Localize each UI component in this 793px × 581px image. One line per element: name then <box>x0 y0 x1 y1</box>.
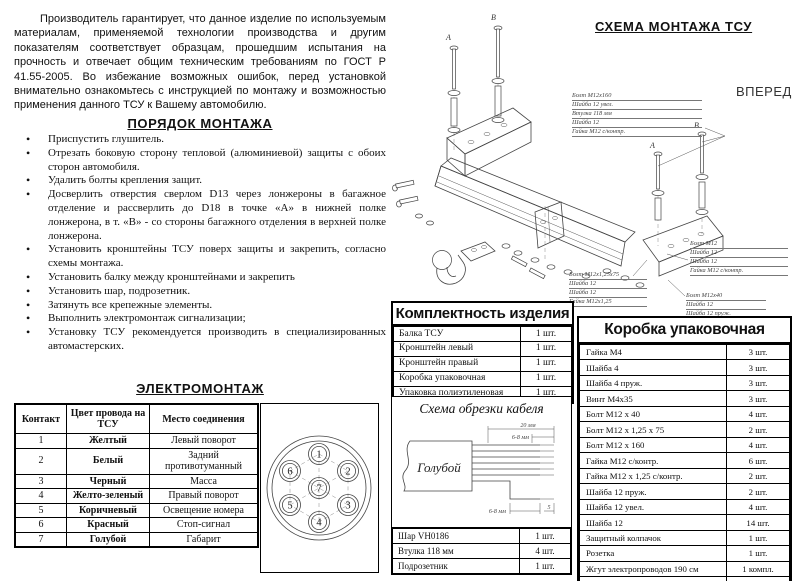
kit-row: Балка ТСУ 1 шт. <box>394 327 572 342</box>
box-item-name: Шайба 12 увел. <box>580 499 727 514</box>
svg-text:20 мм: 20 мм <box>520 423 535 429</box>
box-item-name: Гайка М4 <box>580 345 727 360</box>
packing-box-row: Гайка М4 3 шт. <box>580 345 790 360</box>
wiring-row: 1 Желтый Левый поворот <box>15 434 258 449</box>
box-item-name: Винт М4х35 <box>580 391 727 406</box>
box-item-name: Шайба 4 <box>580 360 727 375</box>
wire-color: Голубой <box>67 532 150 547</box>
packing-box-row: Шайба 12 14 шт. <box>580 515 790 530</box>
wiring-header-row: Контакт Цвет провода на ТСУ Место соедин… <box>15 404 258 434</box>
annotation-line: Шайба 12 <box>572 119 702 128</box>
bolt-right-a <box>652 152 664 220</box>
packing-box-row: Жгут электропроводов 190 см 1 компл. <box>580 561 790 576</box>
box-item-qty: 14 шт. <box>727 515 790 530</box>
annotation-bolt-m12: Болт М12Шайба 12Шайба 12Гайка М12 с/конт… <box>690 240 788 276</box>
kit-row: Коробка упаковочная 1 шт. <box>394 371 572 386</box>
packing-box-row: Винт М4х35 3 шт. <box>580 391 790 406</box>
box-item-name: Шайба 12 пруж. <box>580 484 727 499</box>
box-item-qty: 1 компл. <box>727 561 790 576</box>
svg-text:6: 6 <box>287 467 292 478</box>
packing-box-row: Розетка 1 шт. <box>580 546 790 561</box>
electro-title: ЭЛЕКТРОМОНТАЖ <box>14 381 386 396</box>
contact-number: 6 <box>15 518 67 533</box>
instruction-sheet: А В А В <box>0 0 793 581</box>
pin-5: 5 <box>280 495 301 516</box>
montage-step: Затянуть все крепежные элементы. <box>14 299 386 313</box>
wiring-row: 5 Коричневый Освещение номера <box>15 503 258 518</box>
pin-3: 3 <box>338 495 359 516</box>
packing-box-row: Болт М12 х 1,25 х 75 2 шт. <box>580 422 790 437</box>
kit-item-name: Балка ТСУ <box>394 327 521 342</box>
annotation-line: Болт М12х1,25х75 <box>569 271 647 280</box>
packing-box-row: Шайба 12 увел. 4 шт. <box>580 499 790 514</box>
part-qty: 1 шт. <box>520 529 571 544</box>
wiring-row: 7 Голубой Габарит <box>15 532 258 547</box>
annotation-line: Болт М12х40 <box>686 292 766 301</box>
scheme-title: СХЕМА МОНТАЖА ТСУ <box>595 19 752 34</box>
kit-row: Кронштейн правый 1 шт. <box>394 356 572 371</box>
bolt-left-a <box>448 46 460 133</box>
wire-color: Красный <box>67 518 150 533</box>
montage-step: Досверлить отверстия сверлом D13 через л… <box>14 188 386 243</box>
montage-step: Отрезать боковую сторону тепловой (алюми… <box>14 147 386 175</box>
tow-ball <box>433 242 496 284</box>
montage-title: ПОРЯДОК МОНТАЖА <box>14 116 386 131</box>
svg-text:3: 3 <box>345 501 350 512</box>
point-label-a-left: А <box>445 33 451 42</box>
annotation-line: Гайка М12х1,25 <box>569 298 647 307</box>
kit-item-qty: 1 шт. <box>521 327 572 342</box>
connection-place: Габарит <box>150 532 259 547</box>
forward-label: ВПЕРЕД <box>736 84 792 99</box>
connection-place: Задний противотуманный <box>150 448 259 474</box>
montage-step: Удалить болты крепления защит. <box>14 174 386 188</box>
packing-box-table: Коробка упаковочная Гайка М4 3 шт. Шайба… <box>577 316 792 581</box>
annotation-bolt-m12x160: Болт М12х160Шайба 12 увел.Втулка 118 ммШ… <box>572 92 702 137</box>
col-header-wire-color: Цвет провода на ТСУ <box>67 404 150 434</box>
box-item-name: Защитный колпачок <box>580 530 727 545</box>
packing-box-title: Коробка упаковочная <box>579 318 790 344</box>
pin-6: 6 <box>280 461 301 482</box>
box-item-name: Розетка <box>580 546 727 561</box>
kit-table: Комплектность изделия Балка ТСУ 1 шт. Кр… <box>391 301 574 404</box>
box-item-name: Жгут электропроводов 190 см <box>580 561 727 576</box>
connector-diagram-box: 1 2 3 4 5 6 7 <box>260 403 379 573</box>
box-item-qty: 4 шт. <box>727 499 790 514</box>
box-item-qty: 1 шт. <box>727 546 790 561</box>
packing-box-row: Шайба 4 3 шт. <box>580 360 790 375</box>
box-item-name: Болт М12 х 160 <box>580 437 727 452</box>
wiring-table-wrap: Контакт Цвет провода на ТСУ Место соедин… <box>14 403 259 548</box>
svg-text:2: 2 <box>345 467 350 478</box>
connection-place: Левый поворот <box>150 434 259 449</box>
pin-4: 4 <box>309 512 330 533</box>
wire-color: Желто-зеленый <box>67 489 150 504</box>
part-qty: 4 шт. <box>520 544 571 559</box>
cable-cut-title: Схема обрезки кабеля <box>392 401 571 417</box>
box-item-name: Инструкция по монтажу <box>580 577 727 581</box>
packing-box-row: Болт М12 х 40 4 шт. <box>580 406 790 421</box>
contact-number: 1 <box>15 434 67 449</box>
packing-box-row: Защитный колпачок 1 шт. <box>580 530 790 545</box>
montage-steps-list: Приспустить глушитель.Отрезать боковую с… <box>14 133 386 354</box>
box-item-qty: 4 шт. <box>727 437 790 452</box>
connection-place: Стоп-сигнал <box>150 518 259 533</box>
svg-text:6-8 мм: 6-8 мм <box>512 435 529 441</box>
centerlines <box>454 28 702 260</box>
box-item-name: Гайка М12 х 1,25 с/контр. <box>580 468 727 483</box>
svg-text:1: 1 <box>316 450 321 461</box>
annotation-line: Шайба 12 <box>686 301 766 310</box>
packing-box-row: Болт М12 х 160 4 шт. <box>580 437 790 452</box>
connection-place: Масса <box>150 474 259 489</box>
part-name: Втулка 118 мм <box>393 544 520 559</box>
packing-box-row: Шайба 12 пруж. 2 шт. <box>580 484 790 499</box>
box-item-qty: 3 шт. <box>727 360 790 375</box>
annotation-line: Болт М12х160 <box>572 92 702 101</box>
svg-text:5: 5 <box>287 501 292 512</box>
wire-color: Черный <box>67 474 150 489</box>
wiring-row: 3 Черный Масса <box>15 474 258 489</box>
box-item-name: Болт М12 х 1,25 х 75 <box>580 422 727 437</box>
wires <box>472 445 554 499</box>
wiring-table: Контакт Цвет провода на ТСУ Место соедин… <box>14 403 259 548</box>
kit-item-name: Кронштейн левый <box>394 341 521 356</box>
annotation-line: Гайка М12 с/контр. <box>572 128 702 137</box>
connector-pinout-diagram: 1 2 3 4 5 6 7 <box>261 404 378 572</box>
kit-item-qty: 1 шт. <box>521 371 572 386</box>
box-item-name: Шайба 4 пруж. <box>580 375 727 390</box>
part-name: Шар VH0186 <box>393 529 520 544</box>
contact-number: 4 <box>15 489 67 504</box>
pin-7: 7 <box>309 478 330 499</box>
annotation-line: Шайба 12 <box>569 289 647 298</box>
annotation-line: Шайба 12 увел. <box>572 101 702 110</box>
annotation-line: Втулка 118 мм <box>572 110 702 119</box>
point-label-a-right: А <box>649 141 655 150</box>
col-header-contact: Контакт <box>15 404 67 434</box>
kit-item-qty: 1 шт. <box>521 356 572 371</box>
svg-text:6-8 мм: 6-8 мм <box>489 509 506 515</box>
box-item-name: Гайка М12 с/контр. <box>580 453 727 468</box>
contact-number: 5 <box>15 503 67 518</box>
annotation-line: Гайка М12 с/контр. <box>690 267 788 276</box>
annotation-line: Шайба 12 <box>690 249 788 258</box>
box-item-name: Болт М12 х 40 <box>580 406 727 421</box>
box-item-qty: 6 шт. <box>727 453 790 468</box>
montage-step: Выполнить электромонтаж сигнализации; <box>14 312 386 326</box>
cable-cut-box: Схема обрезки кабеля Голубой 20 мм <box>391 396 572 528</box>
annotation-line: Болт М12 <box>690 240 788 249</box>
small-parts-table: Шар VH0186 1 шт. Втулка 118 мм 4 шт. Под… <box>391 527 572 575</box>
small-parts-row: Втулка 118 мм 4 шт. <box>393 544 571 559</box>
wiring-row: 4 Желто-зеленый Правый поворот <box>15 489 258 504</box>
packing-box-row: Инструкция по монтажу 1 шт. <box>580 577 790 581</box>
svg-text:4: 4 <box>316 518 322 529</box>
sheath-label: Голубой <box>416 460 461 475</box>
pin-1: 1 <box>309 444 330 465</box>
col-header-connection: Место соединения <box>150 404 259 434</box>
annotation-bolt-m12x125x75: Болт М12х1,25х75Шайба 12Шайба 12Гайка М1… <box>569 271 647 307</box>
kit-table-title: Комплектность изделия <box>393 303 572 326</box>
wire-color: Коричневый <box>67 503 150 518</box>
montage-step: Приспустить глушитель. <box>14 133 386 147</box>
box-item-qty: 2 шт. <box>727 468 790 483</box>
annotation-line: Шайба 12 <box>690 258 788 267</box>
box-item-name: Шайба 12 <box>580 515 727 530</box>
cable-cut-diagram: Голубой 20 мм 6-8 мм <box>392 417 569 521</box>
kit-item-name: Кронштейн правый <box>394 356 521 371</box>
wiring-row: 2 Белый Задний противотуманный <box>15 448 258 474</box>
warranty-paragraph: Производитель гарантирует, что данное из… <box>14 12 386 113</box>
montage-step: Установить кронштейны ТСУ поверх защиты … <box>14 243 386 271</box>
bracket-left <box>447 108 531 176</box>
montage-step: Установить шар, подрозетник. <box>14 285 386 299</box>
annotation-line: Шайба 12 <box>569 280 647 289</box>
wire-color: Желтый <box>67 434 150 449</box>
point-label-b-left: В <box>491 13 496 22</box>
box-item-qty: 3 шт. <box>727 391 790 406</box>
montage-step: Установить балку между кронштейнами и за… <box>14 271 386 285</box>
box-item-qty: 3 шт. <box>727 345 790 360</box>
box-item-qty: 4 шт. <box>727 406 790 421</box>
contact-number: 3 <box>15 474 67 489</box>
box-item-qty: 2 шт. <box>727 422 790 437</box>
contact-number: 7 <box>15 532 67 547</box>
pin-2: 2 <box>338 461 359 482</box>
bolt-left-b <box>492 26 504 123</box>
box-item-qty: 3 шт. <box>727 375 790 390</box>
packing-box-row: Гайка М12 х 1,25 с/контр. 2 шт. <box>580 468 790 483</box>
kit-item-qty: 1 шт. <box>521 341 572 356</box>
contact-number: 2 <box>15 448 67 474</box>
box-item-qty: 1 шт. <box>727 530 790 545</box>
connection-place: Правый поворот <box>150 489 259 504</box>
packing-box-row: Шайба 4 пруж. 3 шт. <box>580 375 790 390</box>
svg-text:7: 7 <box>316 484 321 495</box>
kit-item-name: Коробка упаковочная <box>394 371 521 386</box>
box-item-qty: 2 шт. <box>727 484 790 499</box>
box-item-qty: 1 шт. <box>727 577 790 581</box>
connection-place: Освещение номера <box>150 503 259 518</box>
montage-step: Установку ТСУ рекомендуется производить … <box>14 326 386 354</box>
svg-text:5: 5 <box>548 505 551 511</box>
kit-row: Кронштейн левый 1 шт. <box>394 341 572 356</box>
wire-color: Белый <box>67 448 150 474</box>
part-qty: 1 шт. <box>520 559 571 574</box>
packing-box-row: Гайка М12 с/контр. 6 шт. <box>580 453 790 468</box>
small-parts-row: Подрозетник 1 шт. <box>393 559 571 574</box>
part-name: Подрозетник <box>393 559 520 574</box>
small-parts-row: Шар VH0186 1 шт. <box>393 529 571 544</box>
wiring-row: 6 Красный Стоп-сигнал <box>15 518 258 533</box>
